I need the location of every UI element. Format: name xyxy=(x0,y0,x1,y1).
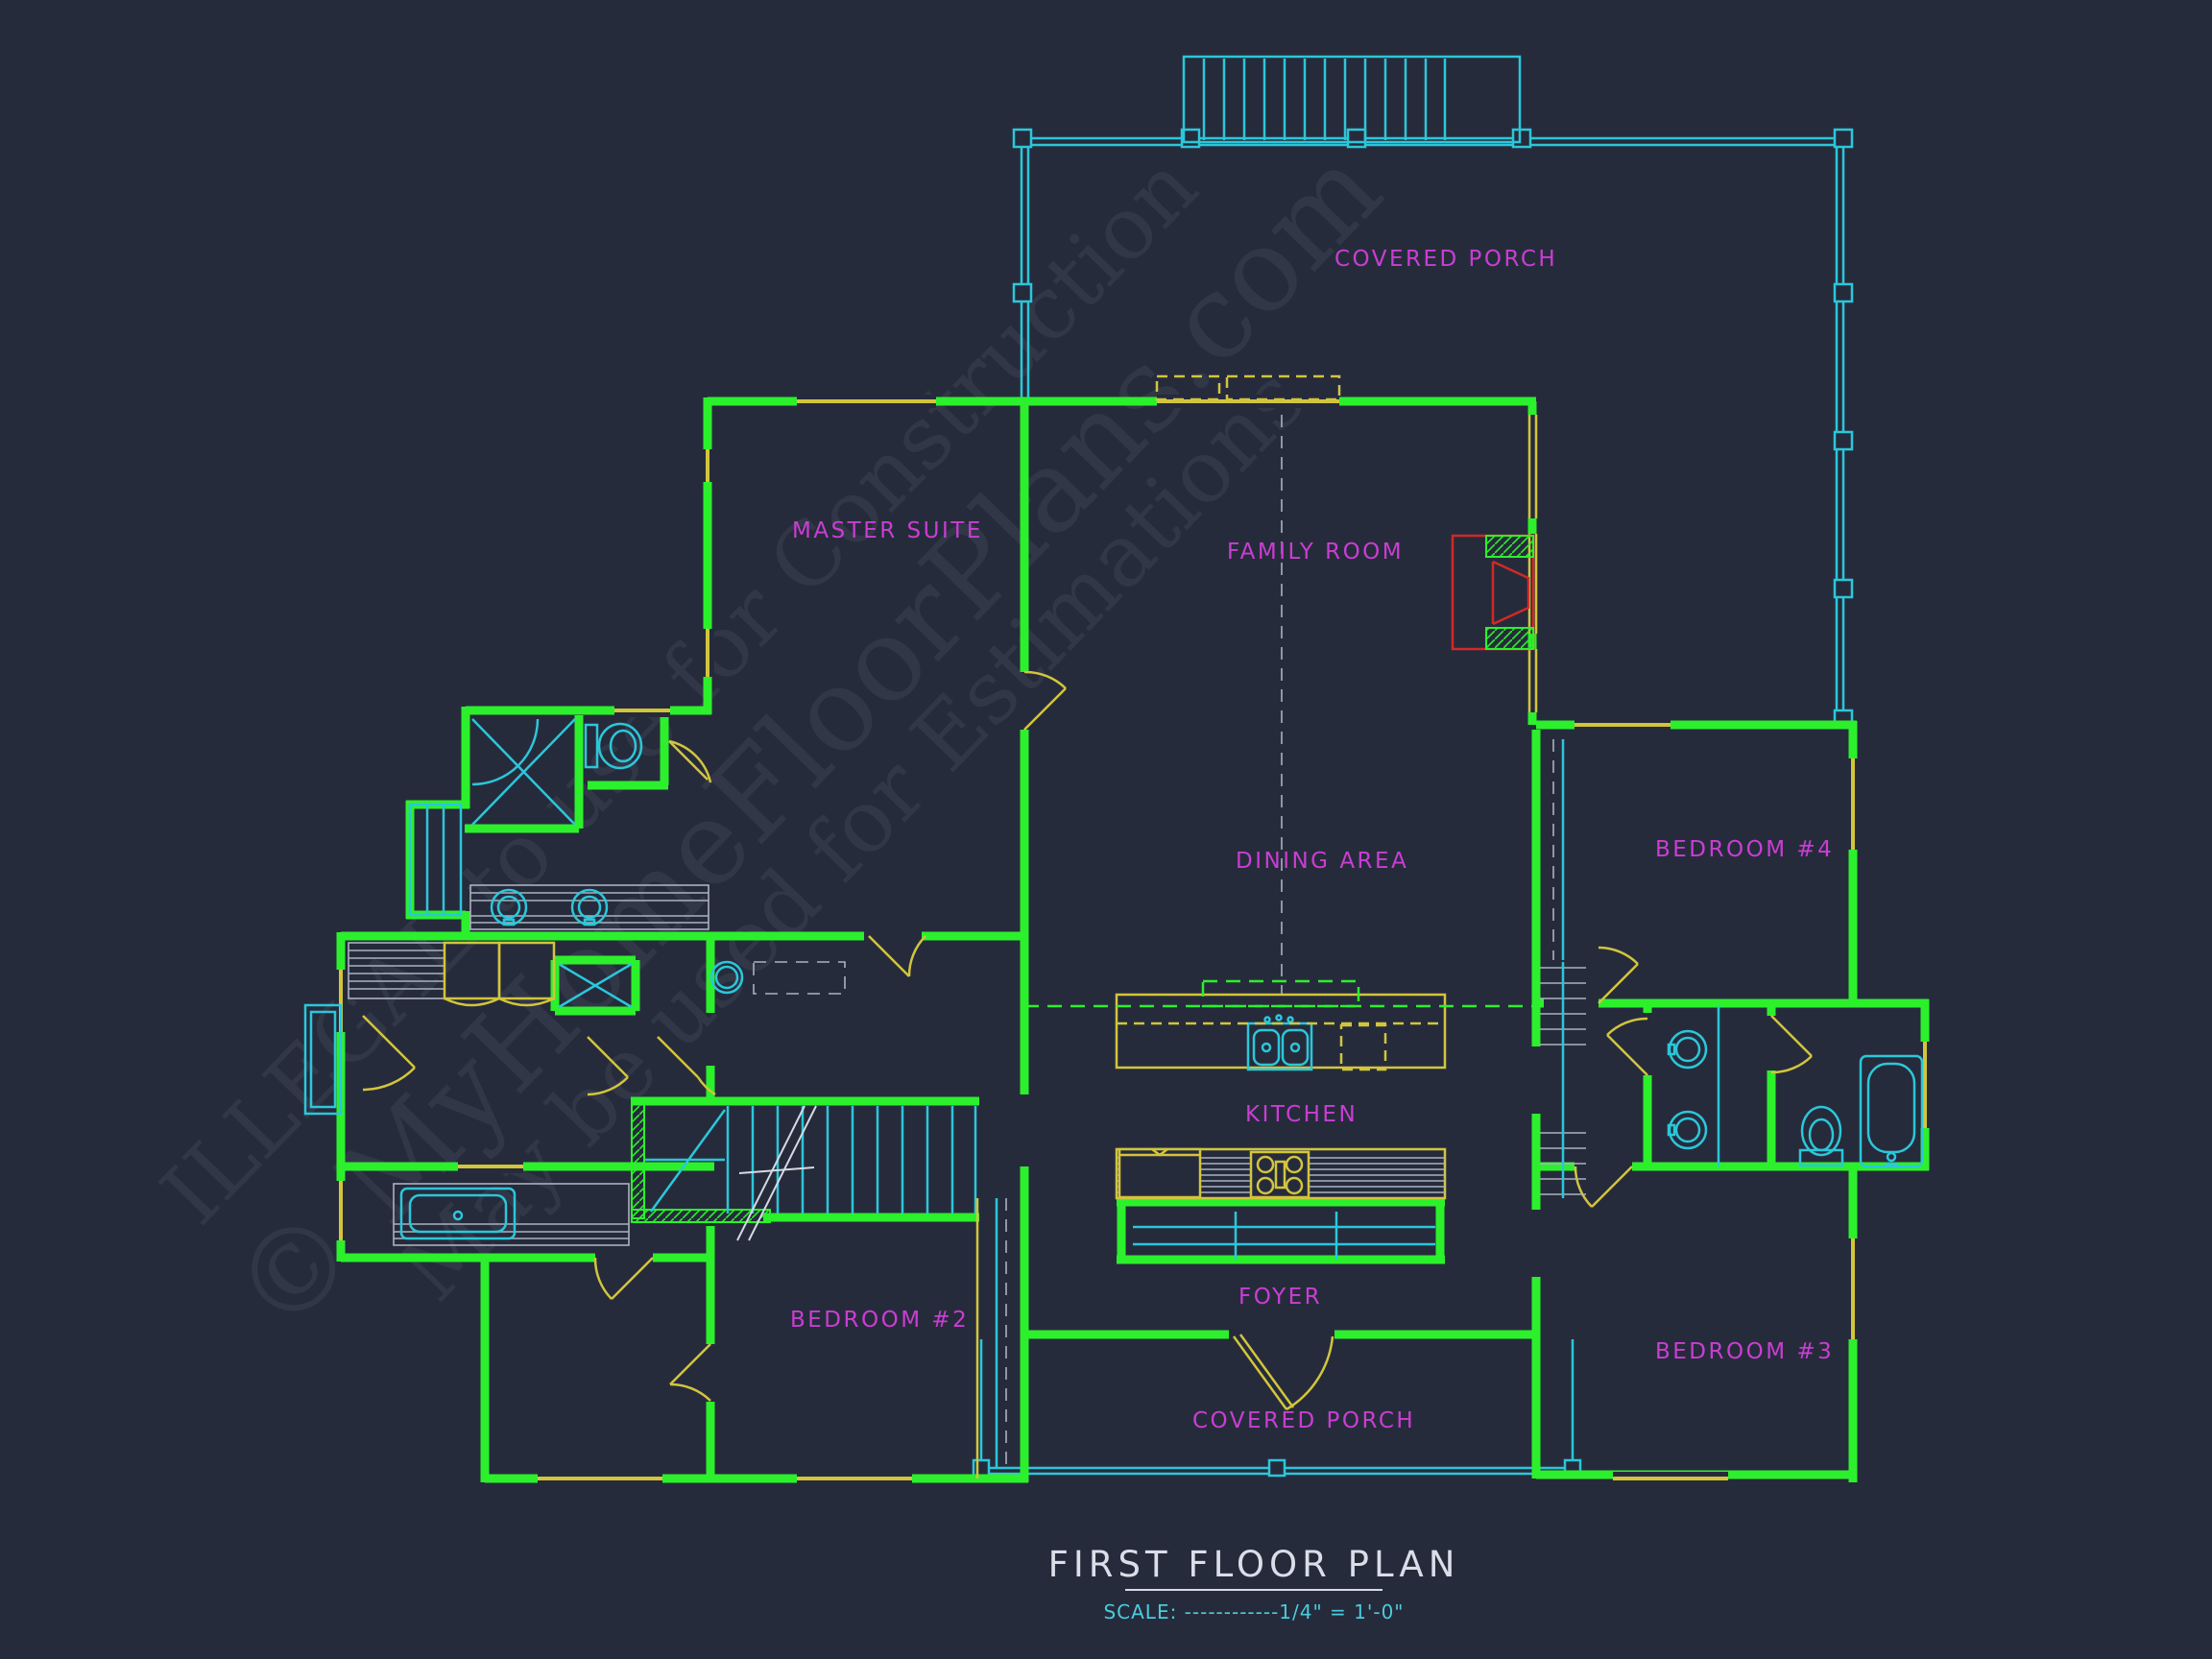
room-label-kitchen: KITCHEN xyxy=(1245,1102,1358,1127)
room-label-covered-porch-top: COVERED PORCH xyxy=(1334,247,1557,272)
fireplace xyxy=(1453,536,1533,649)
title-block: FIRST FLOOR PLAN SCALE: ------------1/4"… xyxy=(1048,1544,1460,1623)
watermark-line-1: © MyHomeFloorPlans.com xyxy=(207,123,1407,1358)
room-label-foyer: FOYER xyxy=(1238,1285,1322,1310)
room-label-bedroom-4: BEDROOM #4 xyxy=(1655,837,1834,862)
plan-scale: SCALE: ------------1/4" = 1'-0" xyxy=(1103,1600,1404,1623)
floor-plan-canvas: © MyHomeFloorPlans.com ILLEGAL to use fo… xyxy=(0,0,2212,1659)
dishwasher xyxy=(1341,1025,1385,1070)
room-label-bedroom-3: BEDROOM #3 xyxy=(1655,1339,1834,1364)
stairs-basement xyxy=(1540,739,1586,1198)
room-label-master-suite: MASTER SUITE xyxy=(792,518,983,543)
bathtub xyxy=(1861,1056,1922,1166)
range xyxy=(1251,1152,1309,1197)
room-label-covered-porch-bottom: COVERED PORCH xyxy=(1192,1408,1415,1433)
room-label-family-room: FAMILY ROOM xyxy=(1227,540,1404,565)
room-label-bedroom-2: BEDROOM #2 xyxy=(790,1308,969,1333)
room-label-dining-area: DINING AREA xyxy=(1236,849,1408,874)
foyer-niche xyxy=(1133,1212,1435,1260)
plan-title: FIRST FLOOR PLAN xyxy=(1048,1544,1460,1585)
covered-porch-bottom xyxy=(974,1339,1580,1476)
kitchen-counter xyxy=(1117,1149,1445,1198)
vanity-double-sink-2 xyxy=(1669,1006,1719,1166)
watermark: © MyHomeFloorPlans.com ILLEGAL to use fo… xyxy=(143,123,1407,1358)
hall-bath-fixtures xyxy=(1669,1006,1922,1166)
refrigerator xyxy=(1119,1149,1200,1197)
toilet-2 xyxy=(1800,1107,1842,1166)
